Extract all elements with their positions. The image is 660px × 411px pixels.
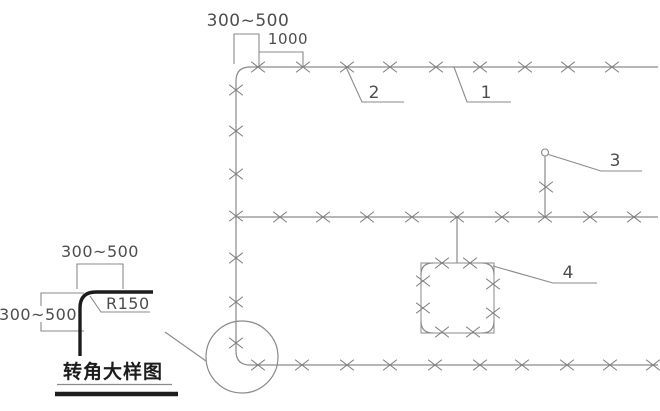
detail-radius-label: R150 — [106, 294, 150, 313]
dim-bracket-offset — [234, 34, 259, 66]
callout-3-node — [542, 149, 549, 156]
device-box-marks-x-icon — [417, 276, 430, 286]
device-box-marks-x-icon — [417, 303, 430, 313]
device-box-marks-x-icon — [487, 279, 500, 289]
callout-label-4: 4 — [563, 263, 574, 283]
diagram-canvas: 300~500 1000 2 1 3 4 300~500 300~500 R15… — [0, 0, 660, 411]
device-box-marks-x-icon — [436, 327, 449, 337]
device-box-corner-arcs — [421, 263, 494, 333]
detail-reference-leader — [165, 332, 206, 361]
geometry-layer — [41, 34, 660, 394]
callout-label-2: 2 — [369, 83, 380, 103]
leader-callout-4 — [493, 266, 597, 283]
detail-dim-label-horizontal: 300~500 — [61, 242, 139, 261]
device-box-marks-x-icon — [467, 327, 480, 337]
branch-stub-mark-x-icon — [540, 182, 553, 192]
dim-bracket-spacing — [259, 52, 303, 66]
cable-tray-diagram: 300~500 1000 2 1 3 4 300~500 300~500 R15… — [0, 0, 660, 411]
callout-label-3: 3 — [610, 151, 621, 171]
main-cable-run — [236, 67, 658, 365]
detail-dim-top-bracket — [77, 264, 123, 289]
device-box-outline — [421, 263, 494, 333]
detail-dim-label-vertical: 300~500 — [0, 305, 77, 324]
device-box-marks-x-icon — [487, 308, 500, 318]
dim-label-top-range: 300~500 — [207, 11, 290, 31]
dim-label-top-spacing: 1000 — [268, 30, 308, 48]
detail-title: 转角大样图 — [63, 360, 163, 383]
callout-label-1: 1 — [481, 83, 492, 103]
detail-reference-circle — [206, 321, 278, 393]
leader-callout-3 — [549, 155, 643, 172]
